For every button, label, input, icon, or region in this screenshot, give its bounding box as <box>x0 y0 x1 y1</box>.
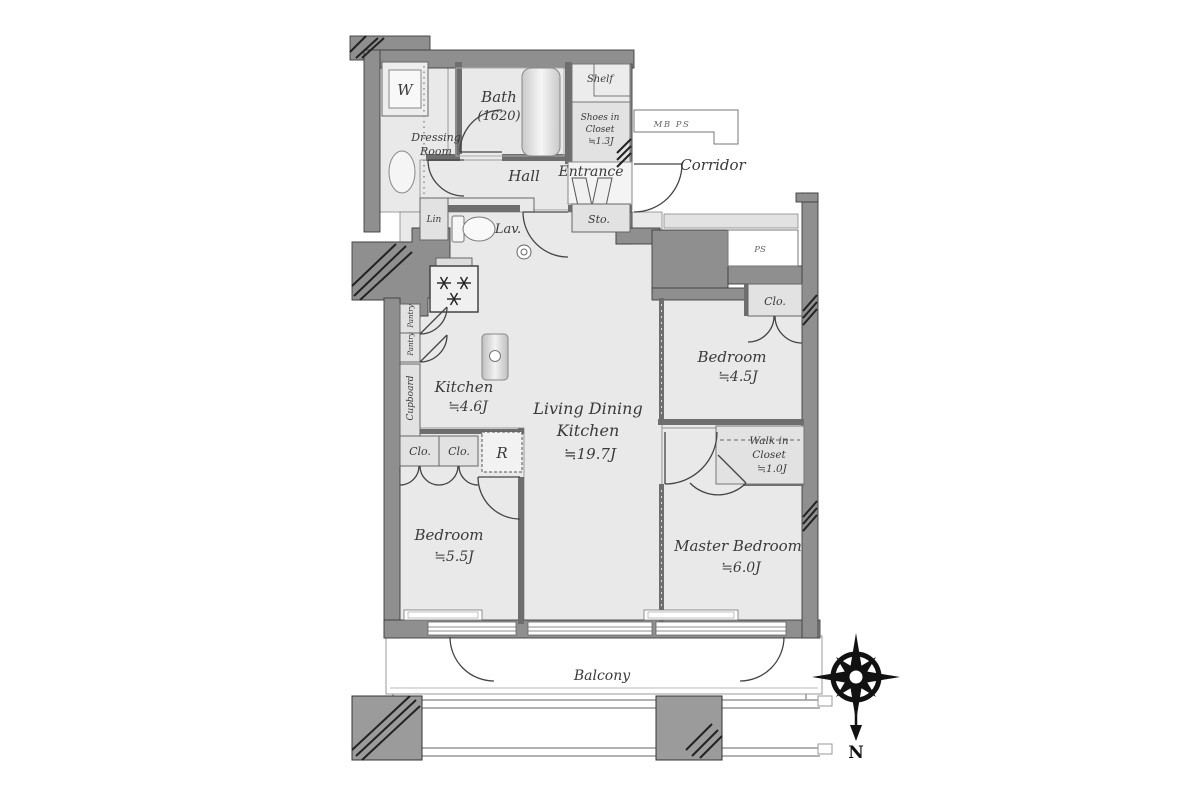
corridor-ledge <box>664 214 798 228</box>
dressing-room-label2: Room <box>419 145 452 158</box>
pantry-label-upper: Pantry <box>407 303 415 328</box>
dressing-room-label: Dressing <box>410 131 461 144</box>
entrance-door <box>634 164 682 212</box>
structural-column <box>656 696 722 760</box>
wall-bedroom-ne-top <box>652 288 752 300</box>
compass-rose <box>812 633 900 741</box>
linen-label: Lin <box>426 215 442 225</box>
floorplan-svg: W Dressing Room Bath (1620) Shelf Shoes … <box>0 0 1200 800</box>
master-bedroom-size-label: ≒6.0J <box>721 560 762 576</box>
wic-label2: Closet <box>752 449 786 461</box>
shoes-closet-label2: Closet <box>586 125 615 135</box>
mb-ps-label: MB PS <box>653 120 691 130</box>
hall-label: Hall <box>507 167 540 185</box>
master-bedroom-label: Master Bedroom <box>673 537 802 555</box>
railing-endcap <box>818 696 832 706</box>
ldk-label2: Kitchen <box>556 421 620 440</box>
compass-north-label: N <box>848 743 864 763</box>
toilet-bowl <box>463 217 495 241</box>
entrance-label: Entrance <box>557 164 623 180</box>
wall-left-upper <box>364 50 380 232</box>
compass-hub <box>847 668 865 686</box>
partition-ldk-master <box>659 484 664 624</box>
bedroom-ne-label: Bedroom <box>697 348 767 366</box>
washer-label: W <box>397 81 414 99</box>
lavatory-label: Lav. <box>494 222 521 237</box>
wall-under-ps <box>728 266 802 284</box>
shoes-closet-label1: Shoes in <box>581 113 620 123</box>
floorplan-canvas: W Dressing Room Bath (1620) Shelf Shoes … <box>0 0 1200 800</box>
shoes-closet-size-label: ≒1.3J <box>588 137 615 147</box>
window-bedroom-sw <box>428 622 516 635</box>
kitchen-label: Kitchen <box>434 378 494 396</box>
wall-right-cap <box>796 193 818 202</box>
ldk-size-label: ≒19.7J <box>564 445 617 463</box>
window-ledge-inner <box>648 612 734 618</box>
kitchen-size-label: ≒4.6J <box>448 399 489 415</box>
window-master <box>656 622 786 635</box>
toilet-tank <box>452 216 464 242</box>
ps-label: PS <box>753 245 766 255</box>
refrigerator-label: R <box>495 444 507 462</box>
drain-circle-inner <box>521 249 527 255</box>
balcony-label: Balcony <box>573 668 631 684</box>
window-ldk <box>528 622 652 635</box>
closet-sw-a-label: Clo. <box>409 445 431 458</box>
wall-bath-shoes <box>565 62 572 164</box>
bedroom-ne-size-label: ≒4.5J <box>718 369 759 385</box>
storage-label: Sto. <box>588 213 610 226</box>
wall-bedroom-sw-east <box>518 477 524 624</box>
ldk-label1: Living Dining <box>532 399 642 418</box>
wall-shaft-block <box>652 230 728 292</box>
balcony-floor <box>386 636 822 694</box>
pantry-label-lower: Pantry <box>407 331 415 356</box>
wic-size-label: ≒1.0J <box>757 463 787 475</box>
closet-ne-label: Clo. <box>764 295 786 308</box>
basin-oval <box>389 151 415 193</box>
corridor-label: Corridor <box>680 156 746 174</box>
counter-sink <box>490 351 501 362</box>
shelf-label: Shelf <box>587 74 615 85</box>
stove <box>430 266 478 312</box>
bedroom-sw-size-label: ≒5.5J <box>434 549 475 565</box>
closet-sw-b-label: Clo. <box>448 445 470 458</box>
wall-left-lower <box>384 298 400 638</box>
bedroom-sw-label: Bedroom <box>414 526 484 544</box>
compass-arrowhead <box>850 725 862 741</box>
wall-right <box>802 193 818 638</box>
bath-label: Bath <box>480 88 517 106</box>
wic-label1: Walk in <box>749 435 789 447</box>
bathtub <box>522 68 560 156</box>
railing-endcap <box>818 744 832 754</box>
cupboard-label: Cupboard <box>406 375 416 420</box>
wall-closet-ne-west <box>744 284 748 316</box>
window-ledge-inner <box>408 612 478 618</box>
bath-size-label: (1620) <box>477 109 520 124</box>
wall-bedroom-ne-south <box>658 419 804 425</box>
balcony-structure <box>352 636 832 760</box>
